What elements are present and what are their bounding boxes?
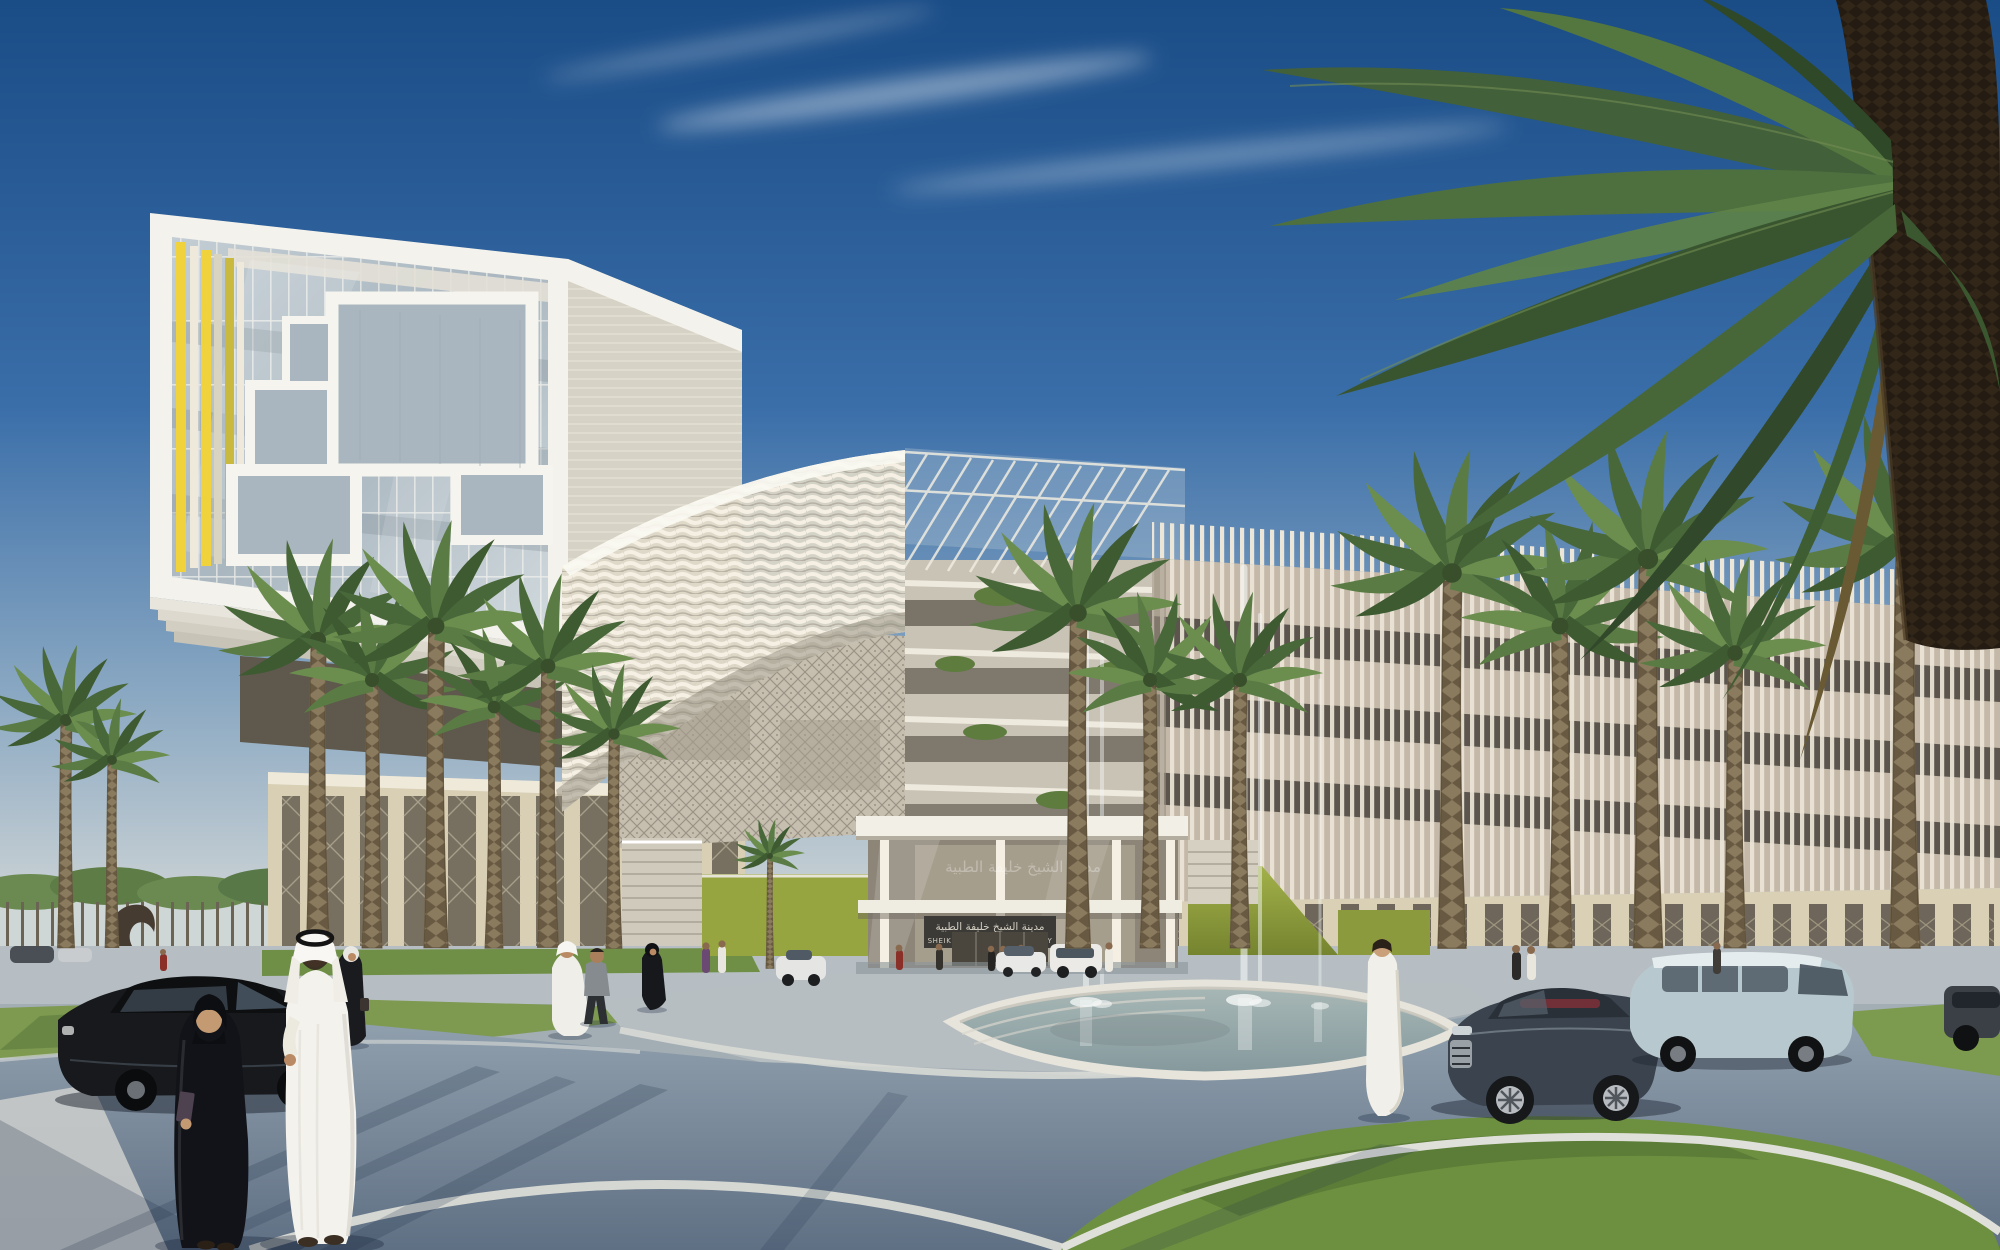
pavilion-roof bbox=[856, 816, 1188, 838]
scene-canvas: مدينة الشيخ خليفة الطبية مدينة الشيخ خلي… bbox=[0, 0, 2000, 1250]
olive-wall-left bbox=[702, 874, 868, 956]
rendering-stage: مدينة الشيخ خليفة الطبية مدينة الشيخ خلي… bbox=[0, 0, 2000, 1250]
background-cars bbox=[10, 946, 92, 963]
left-stairs bbox=[622, 838, 702, 952]
sign-arabic: مدينة الشيخ خليفة الطبية bbox=[935, 921, 1044, 933]
abaya-woman-foreground bbox=[174, 994, 248, 1250]
entrance-canopy-slab bbox=[858, 900, 1182, 913]
light-blue-van bbox=[1630, 952, 1854, 1072]
